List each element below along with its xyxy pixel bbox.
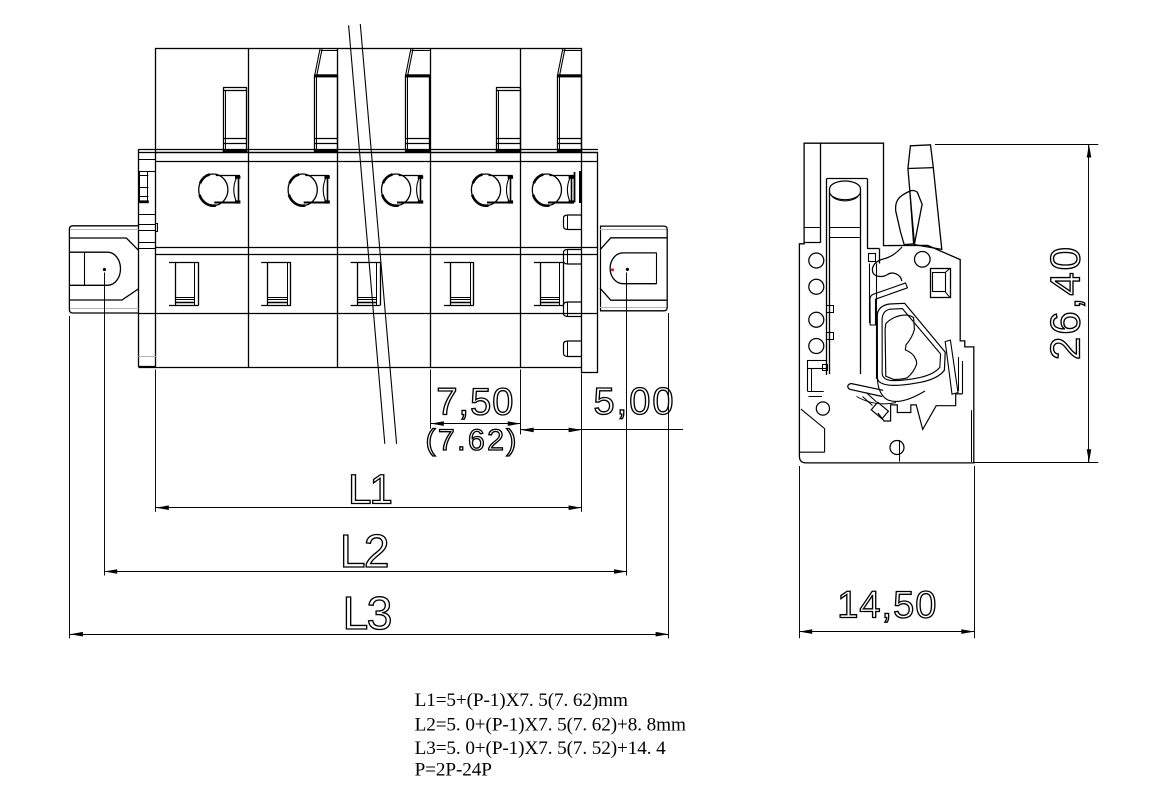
- svg-text:L2: L2: [340, 525, 388, 577]
- svg-text:L1: L1: [348, 466, 391, 513]
- svg-text:(7.62): (7.62): [426, 424, 519, 457]
- svg-text:26,40: 26,40: [1042, 245, 1089, 360]
- svg-text:5,00: 5,00: [594, 381, 676, 423]
- svg-text:14,50: 14,50: [837, 585, 937, 627]
- svg-text:L2=5. 0+(P-1)X7. 5(7. 62)+8. 8: L2=5. 0+(P-1)X7. 5(7. 62)+8. 8mm: [415, 715, 686, 736]
- svg-text:L3: L3: [343, 587, 391, 639]
- svg-text:7,50: 7,50: [436, 382, 514, 424]
- svg-text:P=2P-24P: P=2P-24P: [415, 760, 492, 781]
- svg-text:L3=5. 0+(P-1)X7. 5(7. 52)+14.: L3=5. 0+(P-1)X7. 5(7. 52)+14. 4: [415, 738, 667, 759]
- svg-text:L1=5+(P-1)X7. 5(7. 62)mm: L1=5+(P-1)X7. 5(7. 62)mm: [415, 690, 628, 711]
